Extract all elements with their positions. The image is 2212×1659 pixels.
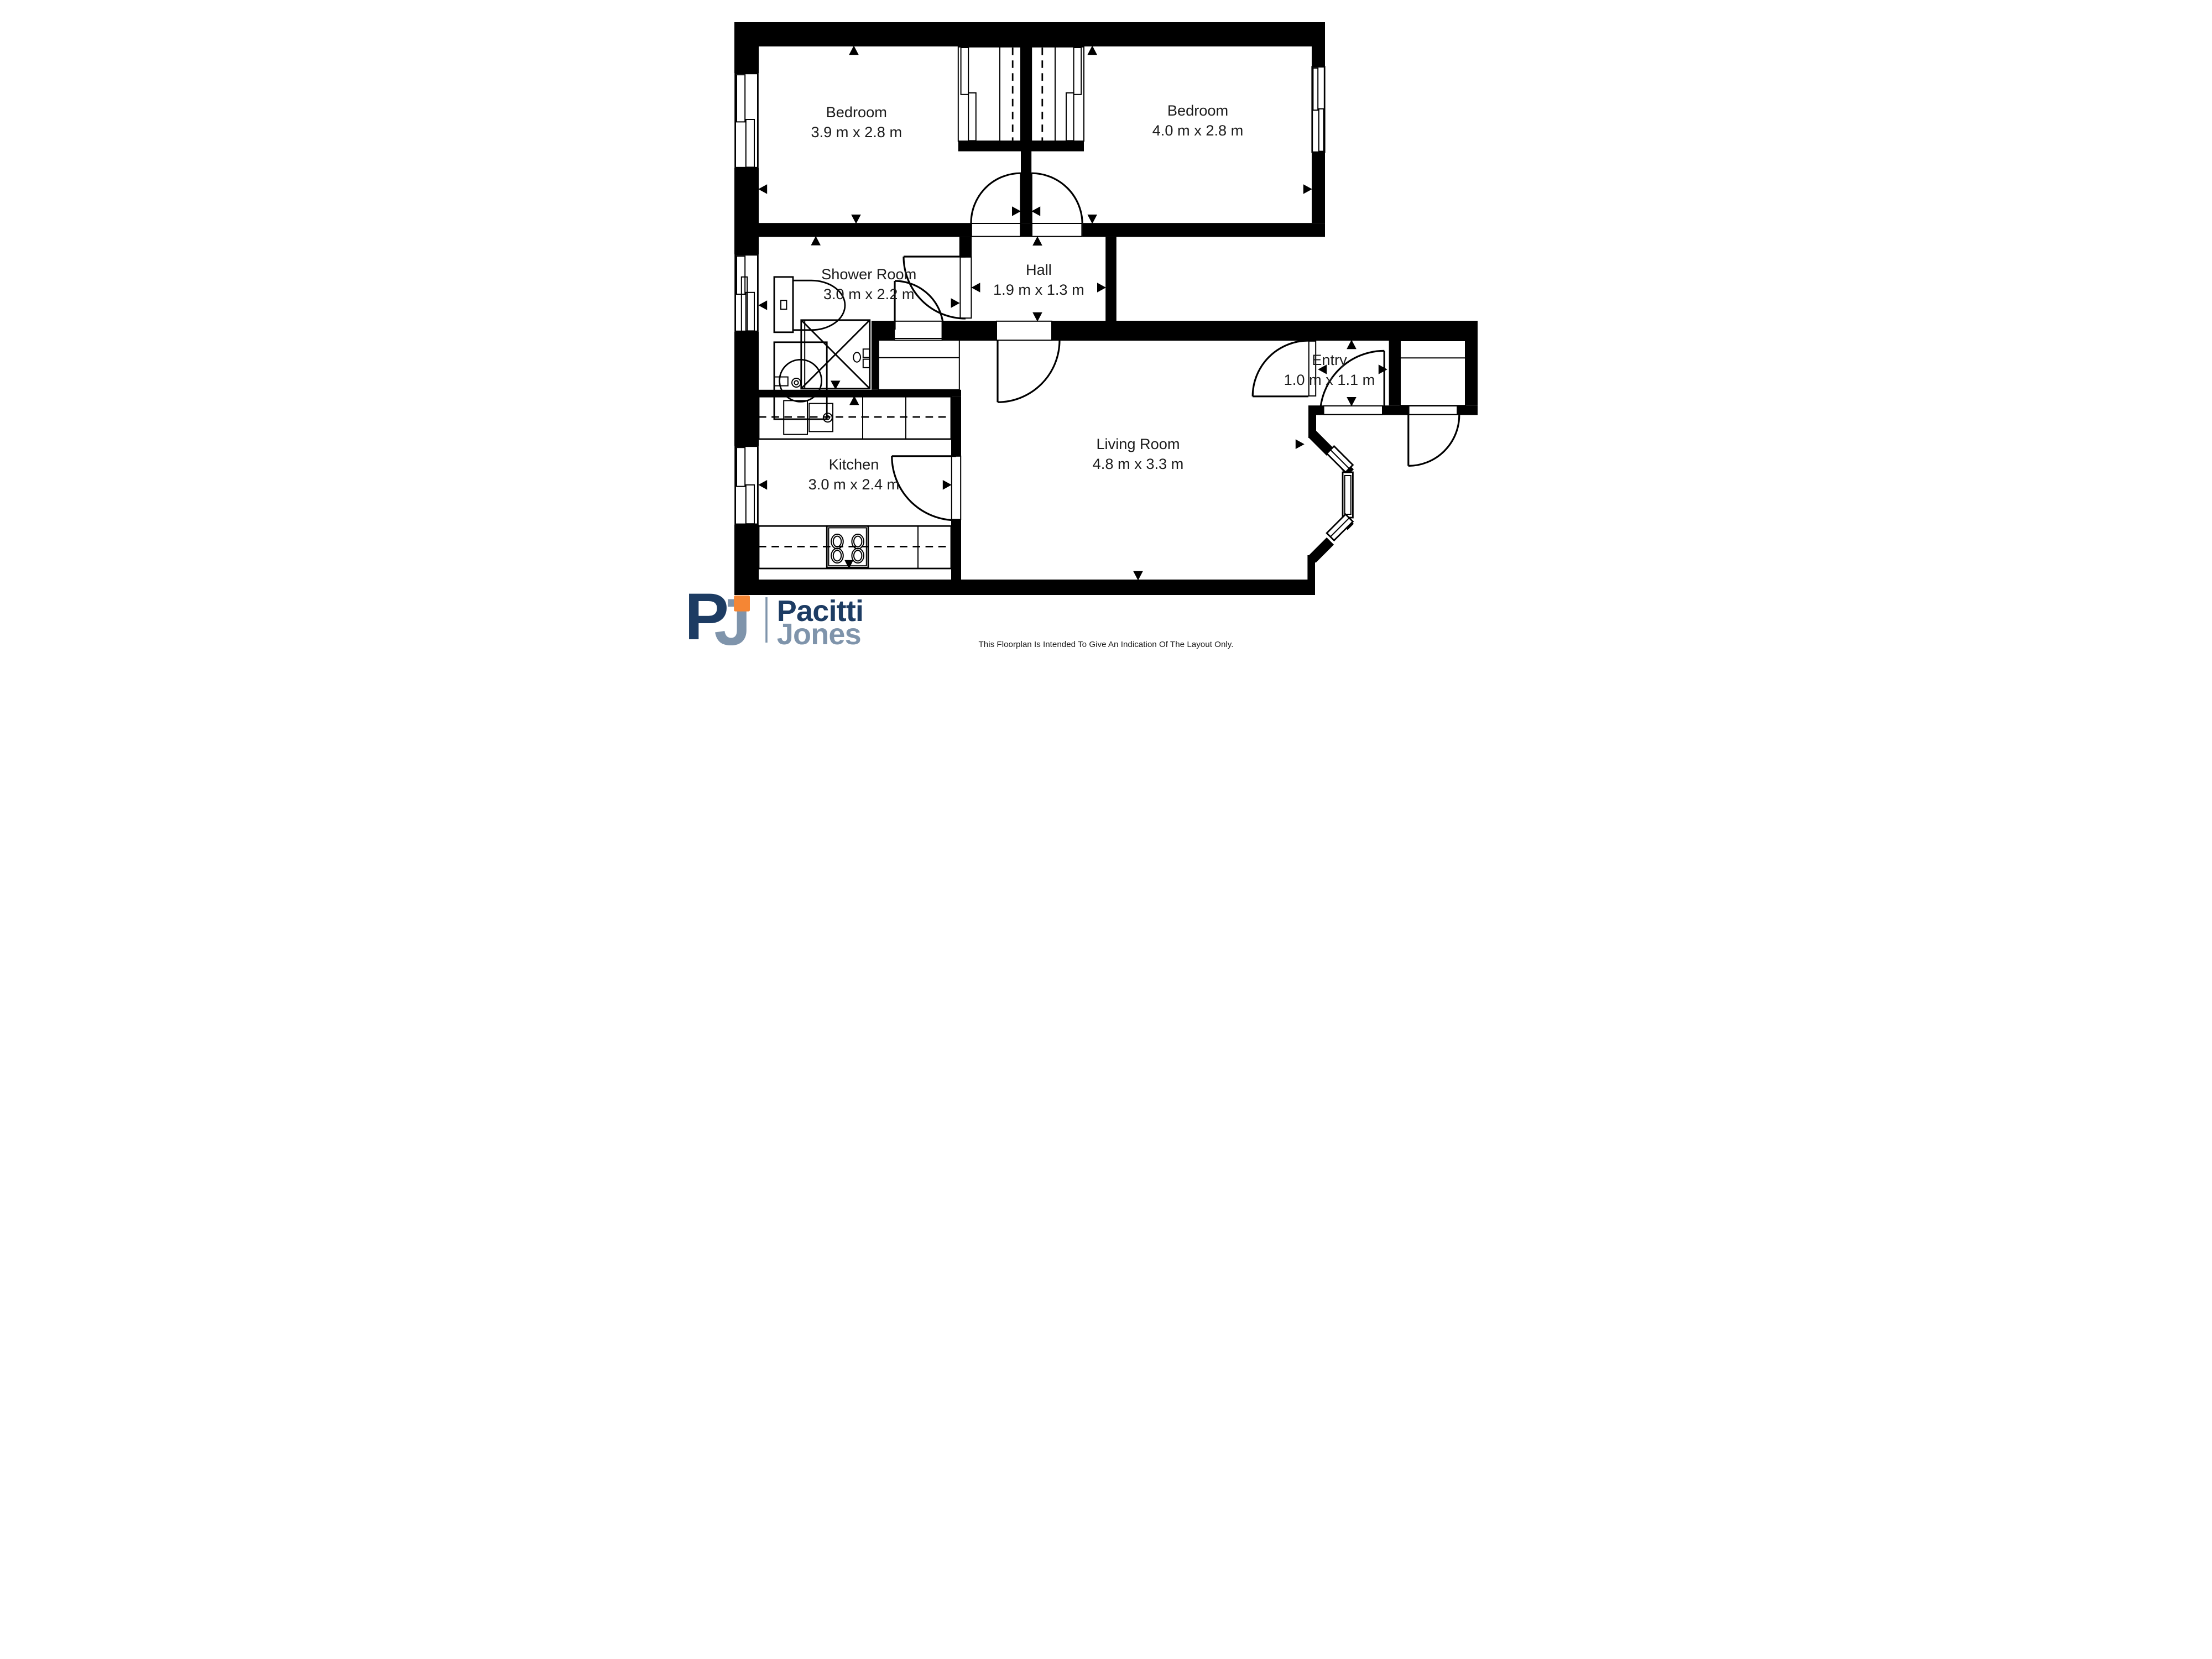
- bedroom-left-door: [971, 173, 1021, 223]
- room-dims-hall: 1.9 m x 1.3 m: [993, 281, 1084, 298]
- room-labels: Bedroom 3.9 m x 2.8 m Bedroom 4.0 m x 2.…: [808, 102, 1375, 493]
- entry-store: [1400, 341, 1465, 405]
- room-label-shower-room: Shower Room: [821, 265, 916, 283]
- closet-right: [1031, 47, 1084, 141]
- bedroom-right-window: [1312, 67, 1324, 152]
- floorplan-drawing: Bedroom 3.9 m x 2.8 m Bedroom 4.0 m x 2.…: [664, 0, 1548, 664]
- room-label-bedroom-right: Bedroom: [1167, 102, 1228, 119]
- room-label-bedroom-left: Bedroom: [826, 103, 887, 121]
- shower-icon: [801, 320, 870, 390]
- entry-store-door: [1408, 415, 1459, 466]
- shower-room-window: [735, 255, 758, 331]
- kitchen-door: [892, 456, 956, 520]
- room-label-kitchen: Kitchen: [829, 456, 879, 473]
- disclaimer-text: This Floorplan Is Intended To Give An In…: [979, 640, 1234, 649]
- closet-left: [958, 47, 1021, 141]
- bedroom-left-window: [735, 74, 758, 168]
- kitchen-window: [735, 446, 758, 524]
- living-room-door: [998, 340, 1060, 402]
- bedroom-right-door: [1031, 173, 1082, 223]
- kitchen-counter-bottom: [759, 526, 951, 568]
- logo-orange-square: [734, 596, 750, 612]
- room-dims-shower-room: 3.0 m x 2.2 m: [823, 285, 915, 302]
- room-label-entry: Entry: [1312, 351, 1347, 368]
- room-dims-bedroom-left: 3.9 m x 2.8 m: [811, 123, 902, 140]
- room-dims-bedroom-right: 4.0 m x 2.8 m: [1152, 122, 1244, 139]
- hall-cupboard: [879, 338, 959, 390]
- room-dims-living-room: 4.8 m x 3.3 m: [1093, 455, 1184, 472]
- room-dims-entry: 1.0 m x 1.1 m: [1284, 371, 1375, 388]
- floorplan-page: Bedroom 3.9 m x 2.8 m Bedroom 4.0 m x 2.…: [664, 0, 1548, 664]
- logo-name-line2: Jones: [777, 618, 861, 651]
- bay-window: [1327, 446, 1353, 540]
- room-label-hall: Hall: [1026, 261, 1052, 278]
- room-dims-kitchen: 3.0 m x 2.4 m: [808, 476, 900, 493]
- room-label-living-room: Living Room: [1096, 435, 1180, 452]
